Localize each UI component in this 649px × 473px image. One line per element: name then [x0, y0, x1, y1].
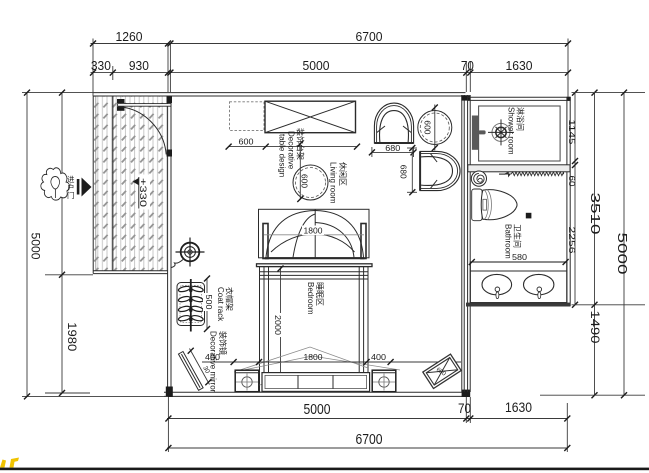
svg-text:Decorative: Decorative: [287, 131, 296, 170]
svg-text:Decorative mirror: Decorative mirror: [209, 331, 218, 393]
svg-text:400: 400: [371, 352, 386, 362]
svg-text:1490: 1490: [588, 311, 602, 344]
svg-text:1800: 1800: [304, 226, 323, 236]
svg-text:2000: 2000: [273, 315, 283, 335]
svg-text:1145: 1145: [567, 120, 577, 145]
svg-text:Coat rack: Coat rack: [216, 287, 225, 322]
svg-text:休闲区: 休闲区: [338, 162, 348, 186]
svg-text:930: 930: [129, 58, 149, 73]
svg-text:5000: 5000: [615, 233, 630, 275]
svg-text:70: 70: [461, 58, 474, 73]
svg-text:500: 500: [204, 295, 213, 311]
svg-text:睡眠区: 睡眠区: [315, 282, 324, 306]
svg-text:3510: 3510: [588, 193, 603, 235]
svg-text:70: 70: [458, 400, 471, 416]
svg-text:1260: 1260: [116, 29, 143, 44]
svg-text:5000: 5000: [29, 233, 43, 260]
svg-text:680: 680: [385, 143, 400, 153]
svg-text:6700: 6700: [356, 29, 383, 44]
svg-text:330: 330: [91, 58, 111, 73]
svg-text:1800: 1800: [304, 352, 323, 362]
svg-text:680: 680: [399, 165, 408, 180]
svg-text:2256: 2256: [567, 227, 577, 254]
svg-text:卫生间: 卫生间: [513, 224, 523, 248]
svg-text:1980: 1980: [65, 322, 79, 351]
svg-text:1630: 1630: [506, 58, 533, 73]
svg-text:Bedroom: Bedroom: [306, 282, 315, 315]
svg-text:6700: 6700: [356, 432, 383, 448]
svg-text:装饰镜: 装饰镜: [218, 331, 228, 355]
svg-text:Shower room: Shower room: [507, 107, 516, 155]
svg-text:门: 门: [67, 191, 75, 200]
svg-text:淋浴间: 淋浴间: [516, 107, 526, 131]
svg-text:5000: 5000: [303, 58, 330, 73]
svg-text:衣帽架: 衣帽架: [225, 287, 235, 311]
svg-text:580: 580: [512, 253, 528, 262]
svg-text:Living room: Living room: [329, 162, 338, 204]
svg-text:600: 600: [300, 174, 309, 189]
svg-text:60: 60: [567, 176, 577, 187]
svg-text:+330: +330: [137, 178, 148, 207]
svg-text:5000: 5000: [304, 402, 331, 418]
svg-text:1630: 1630: [505, 399, 532, 415]
svg-text:600: 600: [423, 120, 432, 135]
svg-text:table design: table design: [278, 134, 287, 177]
svg-text:600: 600: [239, 136, 254, 146]
